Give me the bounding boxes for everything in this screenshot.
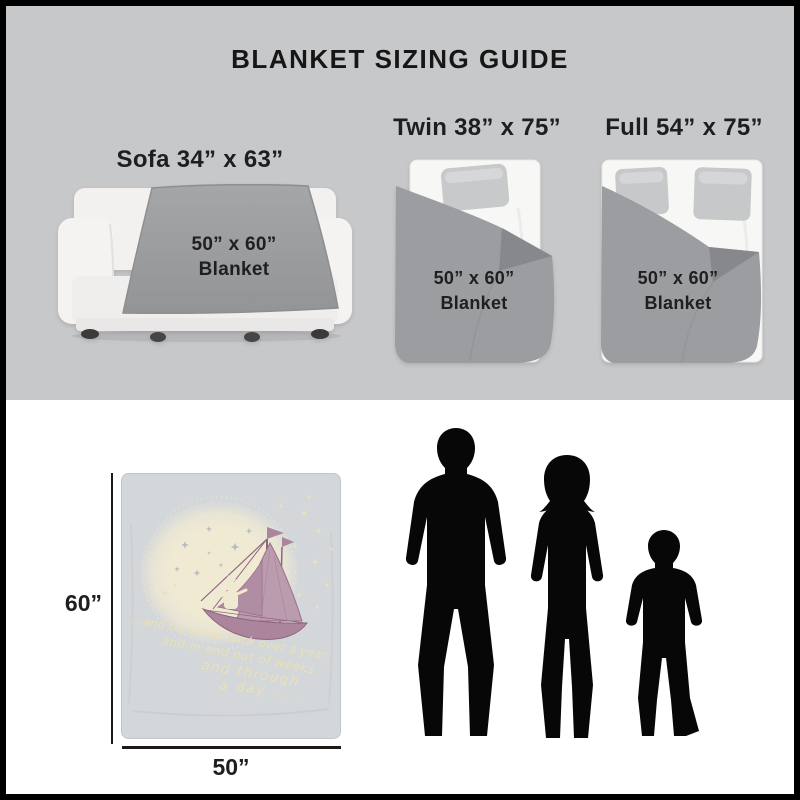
full-size-label: Full 54” x 75” — [594, 114, 774, 142]
sofa-skirt — [76, 318, 334, 331]
twin-size-label: Twin 38” x 75” — [387, 114, 567, 142]
full-pillow-right — [693, 167, 752, 221]
twin-blanket-word: Blanket — [394, 291, 554, 316]
page-title: BLANKET SIZING GUIDE — [6, 44, 794, 75]
sofa-foot — [81, 329, 99, 339]
height-dimension-line — [111, 473, 113, 744]
full-blanket-caption: 50” x 60” Blanket — [598, 266, 758, 316]
sofa-blanket-size: 50” x 60” — [134, 232, 334, 257]
twin-blanket-caption: 50” x 60” Blanket — [394, 266, 554, 316]
sofa-blanket-caption: 50” x 60” Blanket — [134, 232, 334, 282]
sofa-shadow — [71, 330, 341, 342]
full-bed-illustration — [596, 158, 768, 366]
width-dimension-line — [122, 746, 341, 749]
full-blanket-word: Blanket — [598, 291, 758, 316]
sofa-foot — [150, 332, 166, 342]
height-dimension-label: 60” — [46, 590, 102, 617]
twin-pillow — [440, 163, 509, 212]
sofa-size-label: Sofa 34” x 63” — [50, 146, 350, 174]
blanket-sizing-guide: BLANKET SIZING GUIDE Sofa 34” x 63” 50” … — [0, 0, 800, 800]
sofa-blanket-word: Blanket — [134, 257, 334, 282]
child-boy-silhouette — [625, 526, 703, 740]
twin-bed-illustration — [392, 158, 562, 366]
product-blanket-illustration: ...and he sailed back over a year and in… — [121, 473, 341, 739]
adult-woman-silhouette — [522, 453, 612, 740]
width-dimension-label: 50” — [181, 754, 281, 781]
full-blanket-size: 50” x 60” — [598, 266, 758, 291]
adult-man-silhouette — [404, 425, 508, 739]
sofa-foot — [311, 329, 329, 339]
twin-blanket-size: 50” x 60” — [394, 266, 554, 291]
sofa-foot — [244, 332, 260, 342]
